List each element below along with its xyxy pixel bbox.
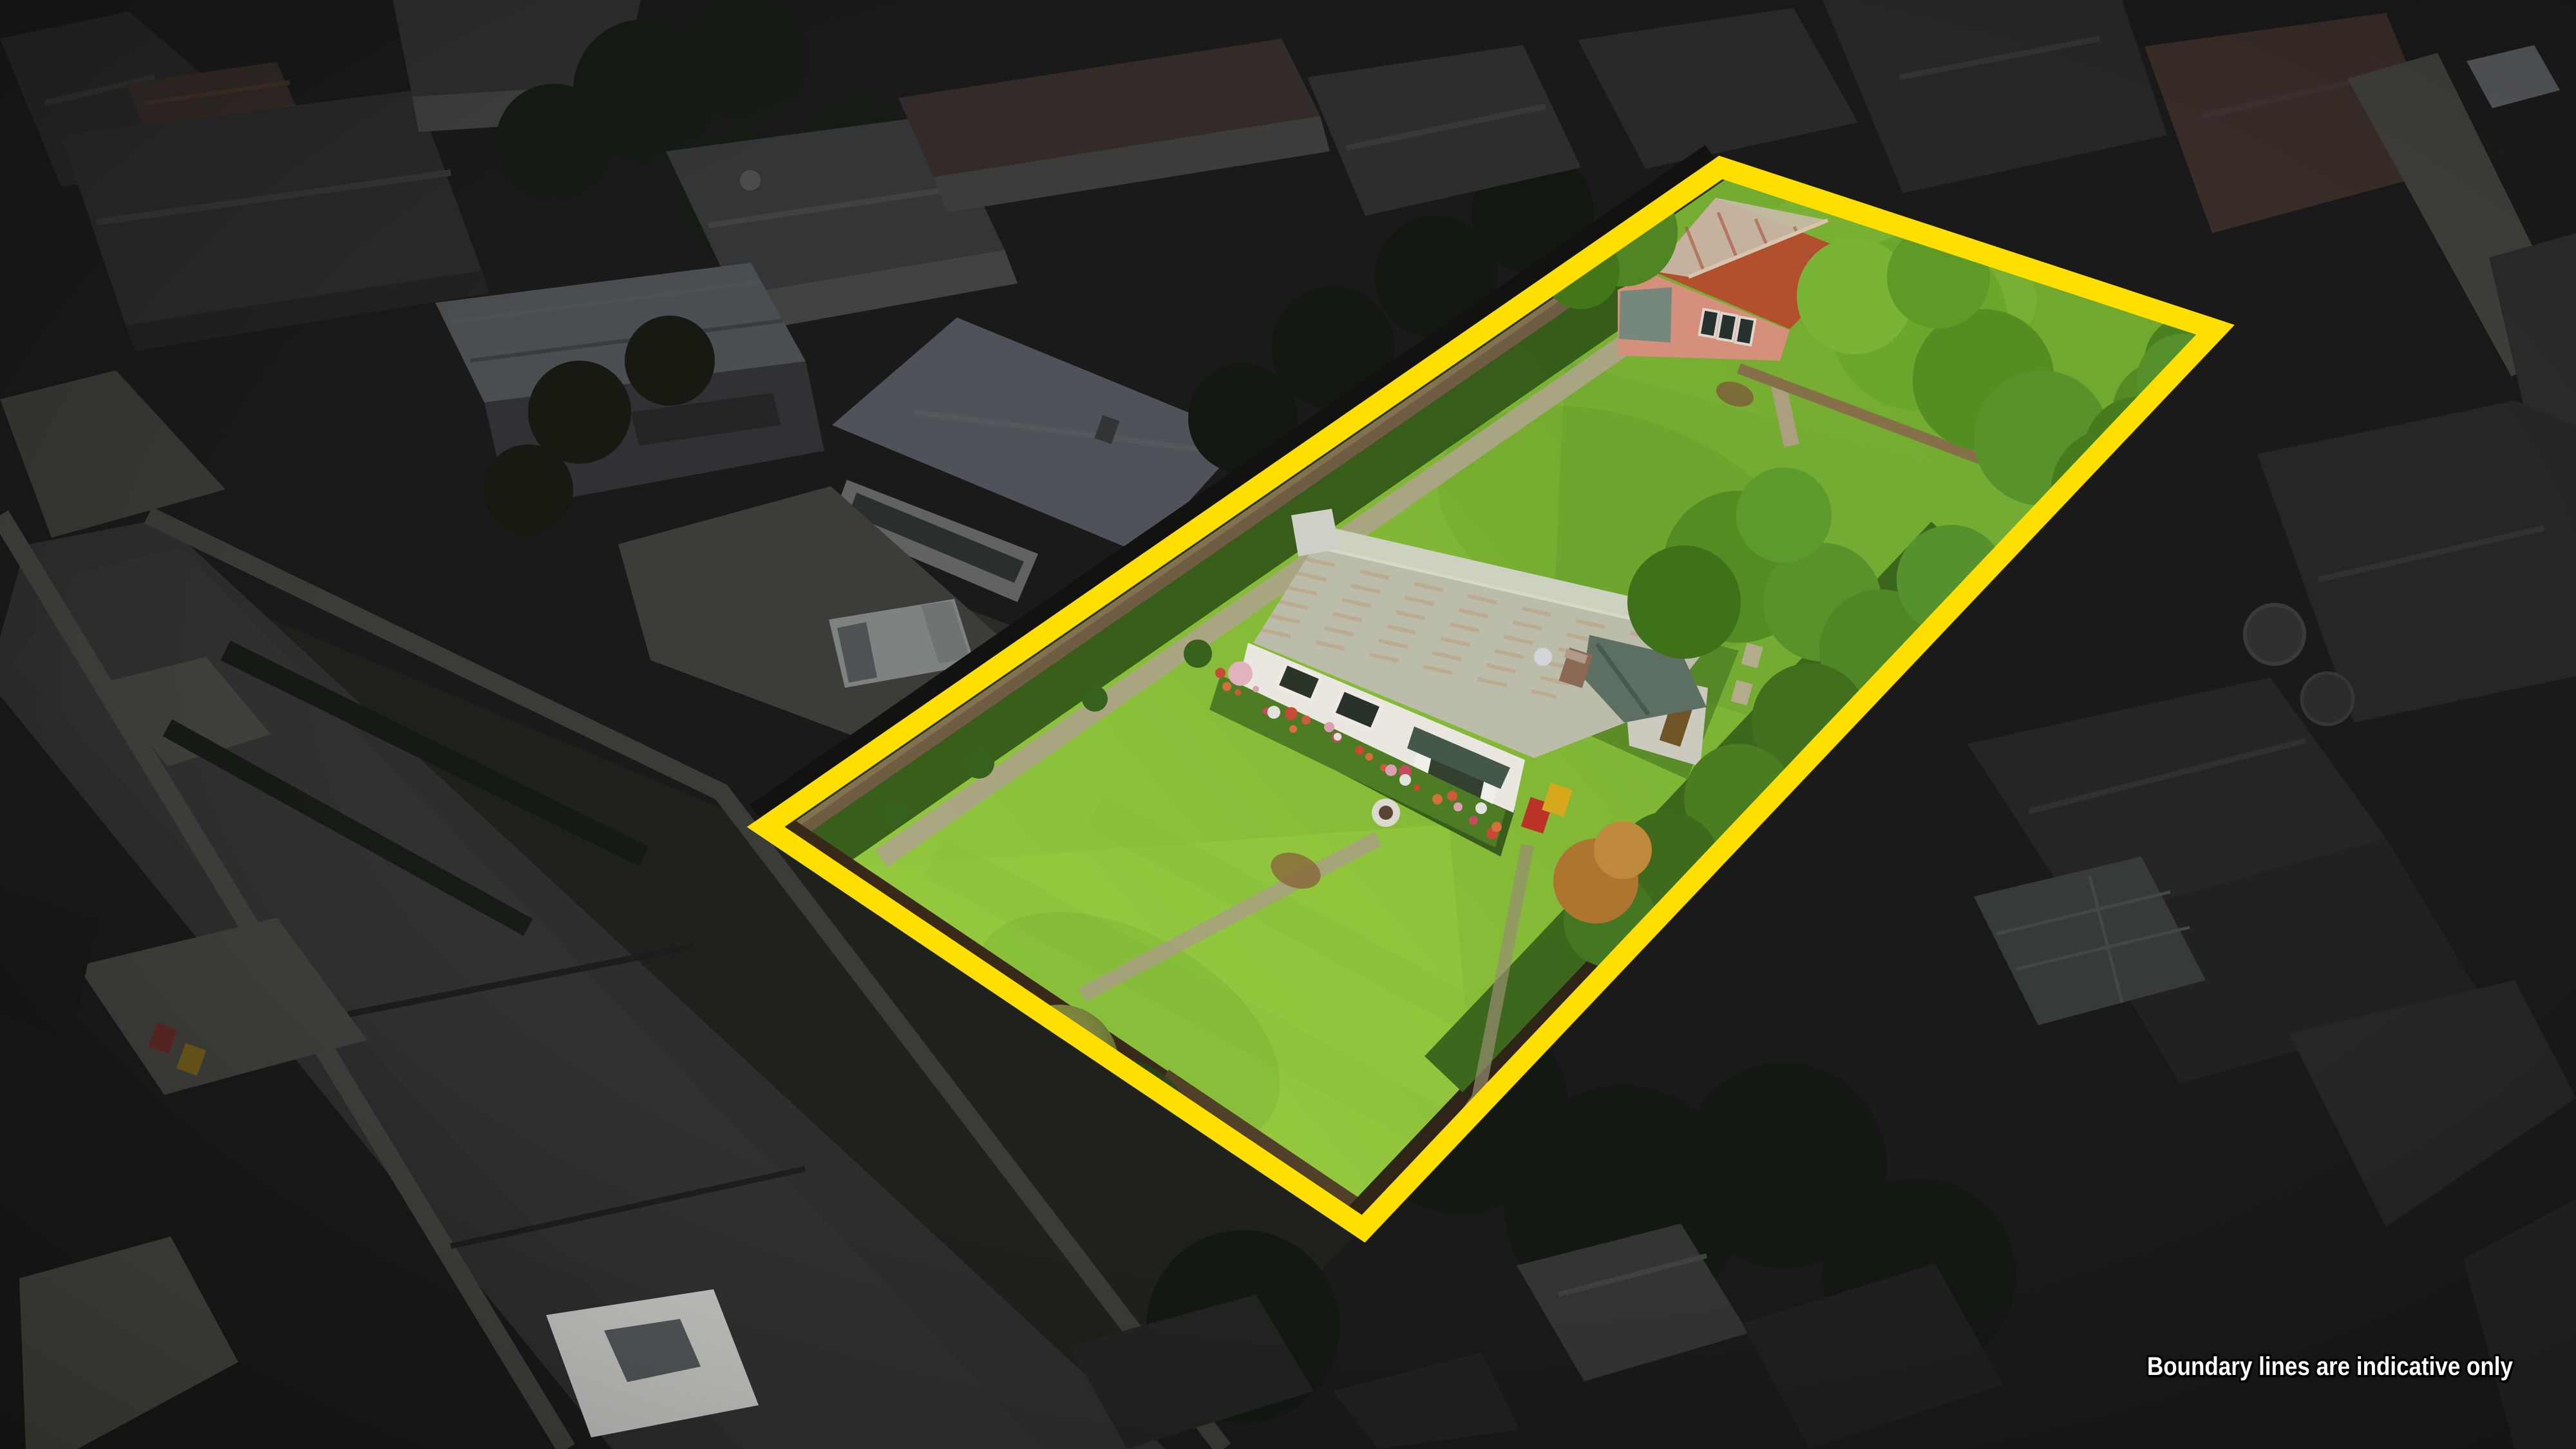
svg-text:Boundary lines are indicative: Boundary lines are indicative only xyxy=(2147,1352,2514,1381)
